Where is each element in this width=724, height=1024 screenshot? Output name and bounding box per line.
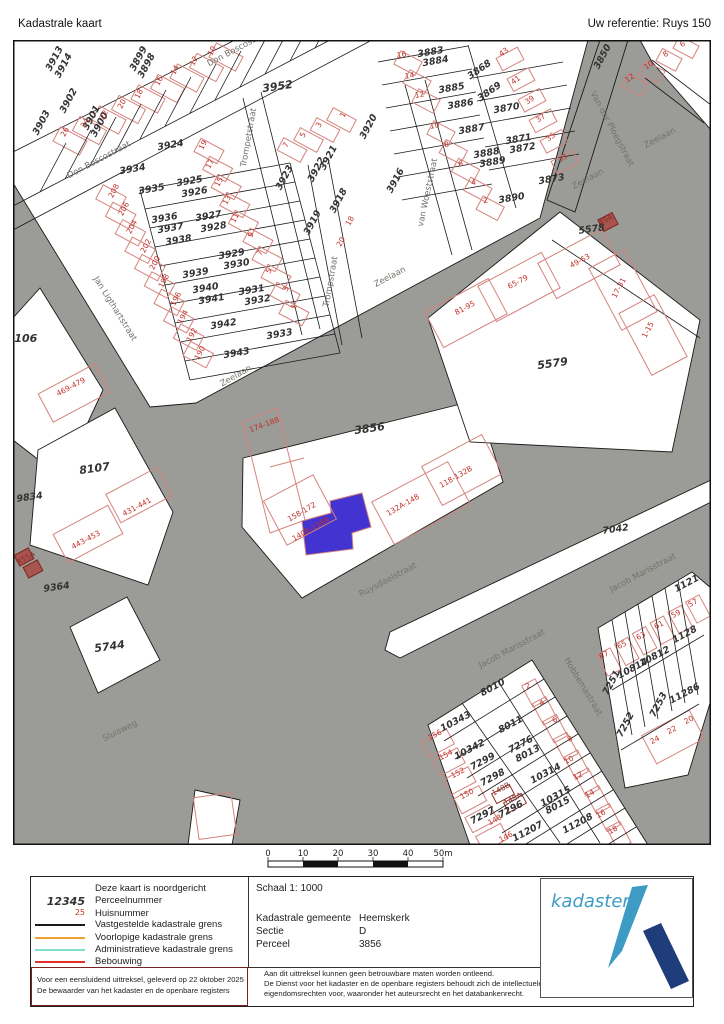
scale-label: Schaal 1: 1000 xyxy=(256,883,323,894)
logo-bar-shape xyxy=(643,923,689,989)
legend-line-voorlopig xyxy=(35,937,85,939)
house-number-label: 14 xyxy=(404,70,415,81)
footer-left-line2: De bewaarder van het kadaster en de open… xyxy=(37,986,230,995)
gemeente-label: Kadastrale gemeente xyxy=(256,913,351,924)
footer-right-line2: De Dienst voor het kadaster en de openba… xyxy=(264,979,543,988)
scale-bar-graphic xyxy=(268,857,443,867)
kadaster-wordmark: kadaster xyxy=(551,891,631,912)
legend-label-voorlopig: Voorlopige kadastrale grens xyxy=(95,932,213,943)
house-number-legend-label: Huisnummer xyxy=(95,908,149,919)
house-number-label: 10 xyxy=(429,120,440,131)
footer-left-cell: Voor een eensluidend uittreksel, gelever… xyxy=(31,967,248,1006)
house-number-label: 12 xyxy=(414,89,425,100)
header: Kadastrale kaart Uw referentie: Ruys 150 xyxy=(18,18,711,30)
legend-line-administratief xyxy=(35,949,85,951)
perceel-label: Perceel xyxy=(256,939,290,950)
legend-label-administratief: Administratieve kadastrale grens xyxy=(95,944,233,955)
sectie-value: D xyxy=(359,926,366,937)
perceel-value: 3856 xyxy=(359,939,381,950)
kadaster-logo-box: kadaster xyxy=(540,878,693,998)
footer-right-line1: Aan dit uittreksel kunnen geen betrouwba… xyxy=(264,969,494,978)
footer-left-line1: Voor een eensluidend uittreksel, gelever… xyxy=(37,975,244,984)
legend-label-vastgesteld: Vastgestelde kadastrale grens xyxy=(95,919,222,930)
legend-line-bebouwing xyxy=(35,961,85,963)
parcel-number-legend-label: Perceelnummer xyxy=(95,895,162,906)
sectie-label: Sectie xyxy=(256,926,284,937)
scale-bar: 0 10 20 30 40 50m xyxy=(255,846,475,874)
reference-label: Uw referentie: Ruys 150 xyxy=(588,18,711,30)
footer-right-line3: eigendomsrechten voor, waaronder het aut… xyxy=(264,989,524,998)
north-note: Deze kaart is noordgericht xyxy=(95,883,206,894)
parcel-number-sample: 12345 xyxy=(35,895,85,908)
legend-label-bebouwing: Bebouwing xyxy=(95,956,142,967)
page-title: Kadastrale kaart xyxy=(18,18,102,30)
cadastral-map: 3913391439023903390139003899389839523924… xyxy=(13,40,711,845)
legend-divider-vertical xyxy=(248,877,249,967)
kadaster-extract-page: Kadastrale kaart Uw referentie: Ruys 150 xyxy=(0,0,724,1024)
parcel-number-label: 8106 xyxy=(13,332,38,345)
gemeente-value: Heemskerk xyxy=(359,913,410,924)
house-number-sample: 25 xyxy=(35,908,85,917)
house-number-label: 16 xyxy=(396,49,407,60)
kadaster-logo: kadaster xyxy=(541,879,692,997)
legend-line-vastgesteld xyxy=(35,924,85,926)
